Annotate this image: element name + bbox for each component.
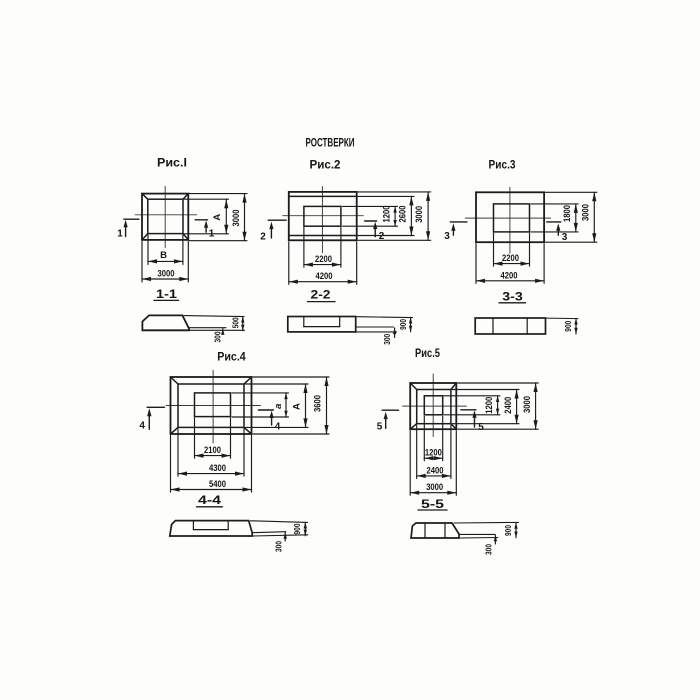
svg-text:1200: 1200	[425, 448, 442, 458]
svg-text:3000: 3000	[581, 204, 591, 221]
svg-text:1-1: 1-1	[156, 287, 177, 301]
svg-text:300: 300	[214, 331, 223, 342]
svg-text:2400: 2400	[503, 397, 513, 414]
svg-text:3600: 3600	[313, 395, 323, 412]
svg-text:4: 4	[139, 420, 145, 431]
svg-text:a: a	[273, 404, 284, 409]
svg-text:300: 300	[275, 541, 284, 552]
svg-text:2200: 2200	[315, 254, 332, 264]
svg-text:3000: 3000	[522, 396, 532, 413]
svg-text:3000: 3000	[158, 269, 175, 279]
svg-text:Рис.3: Рис.3	[489, 160, 516, 172]
svg-text:B: B	[160, 250, 167, 261]
svg-text:A: A	[212, 214, 223, 221]
svg-text:500: 500	[232, 317, 241, 328]
svg-text:5: 5	[377, 422, 383, 433]
svg-text:Рис.2: Рис.2	[310, 160, 341, 172]
svg-text:900: 900	[504, 525, 513, 536]
svg-text:Рис.I: Рис.I	[157, 158, 187, 170]
svg-text:4-4: 4-4	[198, 493, 221, 507]
svg-text:2: 2	[260, 232, 266, 243]
svg-text:Рис.4: Рис.4	[217, 352, 246, 364]
svg-text:РОСТВЕРКИ: РОСТВЕРКИ	[306, 138, 355, 150]
svg-text:2200: 2200	[502, 253, 519, 263]
svg-text:2100: 2100	[204, 445, 221, 455]
svg-text:900: 900	[399, 318, 408, 329]
svg-text:A: A	[292, 403, 303, 410]
svg-text:900: 900	[293, 523, 302, 534]
svg-text:2400: 2400	[427, 465, 444, 475]
svg-text:3-3: 3-3	[502, 289, 523, 303]
svg-text:3000: 3000	[414, 206, 424, 223]
svg-text:1200: 1200	[484, 397, 494, 414]
svg-text:4200: 4200	[501, 270, 518, 280]
svg-text:300: 300	[485, 544, 494, 555]
svg-text:Рис.5: Рис.5	[415, 348, 440, 360]
svg-text:300: 300	[383, 333, 392, 344]
svg-text:3000: 3000	[231, 210, 241, 227]
svg-text:4300: 4300	[209, 463, 226, 473]
svg-text:3: 3	[562, 232, 568, 243]
svg-text:3: 3	[444, 231, 450, 242]
svg-text:5400: 5400	[209, 479, 226, 489]
svg-text:3000: 3000	[426, 482, 443, 492]
svg-text:2-2: 2-2	[311, 288, 331, 302]
svg-text:5-5: 5-5	[421, 497, 444, 511]
svg-text:1: 1	[117, 229, 123, 240]
svg-text:2600: 2600	[397, 206, 407, 223]
svg-text:4200: 4200	[316, 271, 333, 281]
svg-text:900: 900	[564, 320, 573, 331]
svg-text:1800: 1800	[562, 205, 572, 222]
svg-text:1200: 1200	[381, 206, 391, 223]
